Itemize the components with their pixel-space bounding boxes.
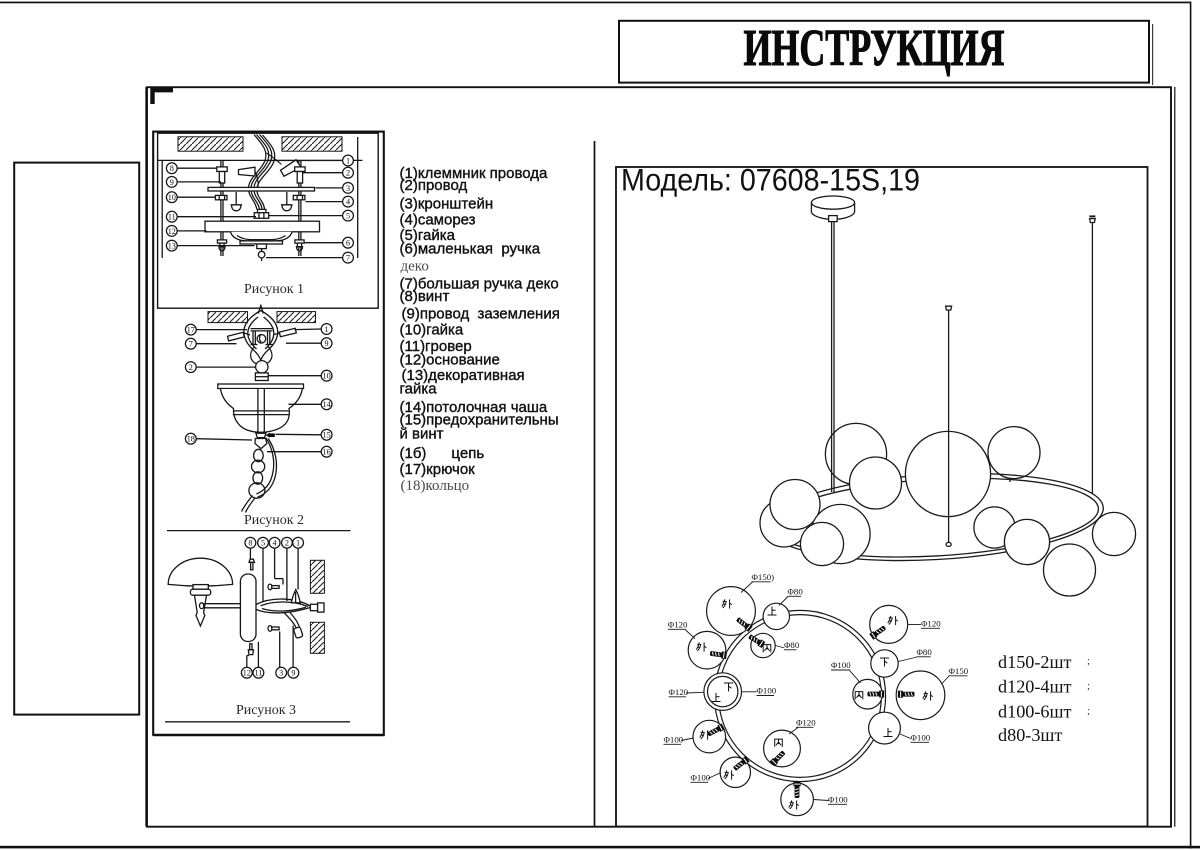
- svg-text:;: ;: [1087, 705, 1090, 717]
- svg-text:1: 1: [296, 539, 300, 548]
- svg-text:11: 11: [168, 213, 176, 222]
- svg-text:8: 8: [170, 164, 174, 173]
- svg-text:4: 4: [346, 198, 350, 207]
- svg-text:Φ100: Φ100: [691, 773, 711, 783]
- svg-text:Φ100: Φ100: [664, 735, 684, 745]
- svg-text:ИНСТРУКЦИЯ: ИНСТРУКЦИЯ: [744, 20, 1005, 77]
- svg-text:Рисунок 2: Рисунок 2: [244, 513, 304, 528]
- svg-text:Φ150: Φ150: [949, 666, 969, 676]
- svg-text:d100-6шт: d100-6шт: [998, 702, 1072, 722]
- svg-text:9: 9: [170, 178, 174, 187]
- svg-text:(9)провод заземления: (9)провод заземления: [402, 306, 560, 323]
- svg-text:16: 16: [323, 448, 331, 457]
- svg-text:Рисунок 1: Рисунок 1: [244, 282, 304, 297]
- svg-text:Φ120: Φ120: [668, 620, 688, 630]
- svg-text:d80-3шт: d80-3шт: [998, 725, 1062, 745]
- svg-text:12: 12: [243, 669, 251, 678]
- svg-text:;: ;: [1087, 655, 1090, 667]
- svg-text:12: 12: [168, 227, 176, 236]
- svg-text:9: 9: [291, 669, 295, 678]
- svg-text:Φ120: Φ120: [796, 718, 816, 728]
- svg-text:2: 2: [189, 363, 193, 372]
- svg-text:d150-2шт: d150-2шт: [998, 652, 1072, 672]
- svg-text:(2)провод: (2)провод: [400, 177, 468, 194]
- svg-text:Модель: 07608-15S,19: Модель: 07608-15S,19: [621, 162, 920, 198]
- svg-text:2: 2: [346, 169, 350, 178]
- svg-text:7: 7: [189, 340, 193, 349]
- svg-text:14: 14: [323, 400, 331, 409]
- svg-text:10: 10: [168, 193, 176, 202]
- svg-text:Φ120: Φ120: [669, 687, 689, 697]
- svg-text:6: 6: [346, 239, 350, 248]
- svg-text:Φ100: Φ100: [757, 686, 777, 696]
- svg-text:Φ80: Φ80: [784, 640, 800, 650]
- svg-text:Φ100: Φ100: [911, 733, 931, 743]
- svg-text:(8)винт: (8)винт: [400, 288, 450, 305]
- svg-text:18: 18: [187, 435, 195, 444]
- svg-text:Φ80: Φ80: [788, 587, 804, 597]
- svg-text:7: 7: [346, 254, 350, 263]
- svg-text:Φ100: Φ100: [828, 795, 848, 805]
- svg-text:15: 15: [323, 431, 331, 440]
- svg-text:1: 1: [346, 156, 350, 165]
- svg-text:(17)крючок: (17)крючок: [400, 461, 476, 478]
- svg-text:8: 8: [248, 539, 252, 548]
- svg-text:(18)кольцо: (18)кольцо: [401, 478, 470, 494]
- svg-text:(6)маленькая ручка: (6)маленькая ручка: [400, 240, 541, 257]
- svg-text:9: 9: [325, 339, 329, 348]
- svg-text:Φ150): Φ150): [752, 572, 775, 582]
- svg-text:1: 1: [325, 325, 329, 334]
- svg-text:Φ100: Φ100: [831, 660, 851, 670]
- svg-text:11: 11: [254, 669, 262, 678]
- svg-text:Φ80: Φ80: [917, 647, 933, 657]
- svg-text:d120-4шт: d120-4шт: [998, 677, 1072, 697]
- svg-text:(4)саморез: (4)саморез: [400, 212, 476, 229]
- svg-text:Φ120: Φ120: [921, 619, 941, 629]
- svg-text:гайка: гайка: [400, 381, 438, 398]
- svg-text:5: 5: [261, 539, 265, 548]
- svg-text:13: 13: [168, 242, 176, 251]
- svg-text:деко: деко: [401, 258, 429, 274]
- svg-text:3: 3: [279, 669, 283, 678]
- svg-text:й винт: й винт: [400, 425, 444, 442]
- svg-text:(12)основание: (12)основание: [400, 352, 500, 369]
- svg-text:10: 10: [323, 372, 331, 381]
- svg-text:5: 5: [346, 212, 350, 221]
- svg-text:3: 3: [346, 184, 350, 193]
- svg-text:(10)гайка: (10)гайка: [400, 321, 464, 338]
- svg-text:4: 4: [273, 539, 277, 548]
- svg-text:2: 2: [285, 539, 289, 548]
- svg-text:Рисунок 3: Рисунок 3: [236, 703, 296, 718]
- svg-text:(1б) цепь: (1б) цепь: [400, 445, 485, 462]
- svg-text:17: 17: [187, 326, 195, 335]
- svg-text:;: ;: [1087, 680, 1090, 692]
- svg-text:(3)кронштейн: (3)кронштейн: [400, 195, 494, 212]
